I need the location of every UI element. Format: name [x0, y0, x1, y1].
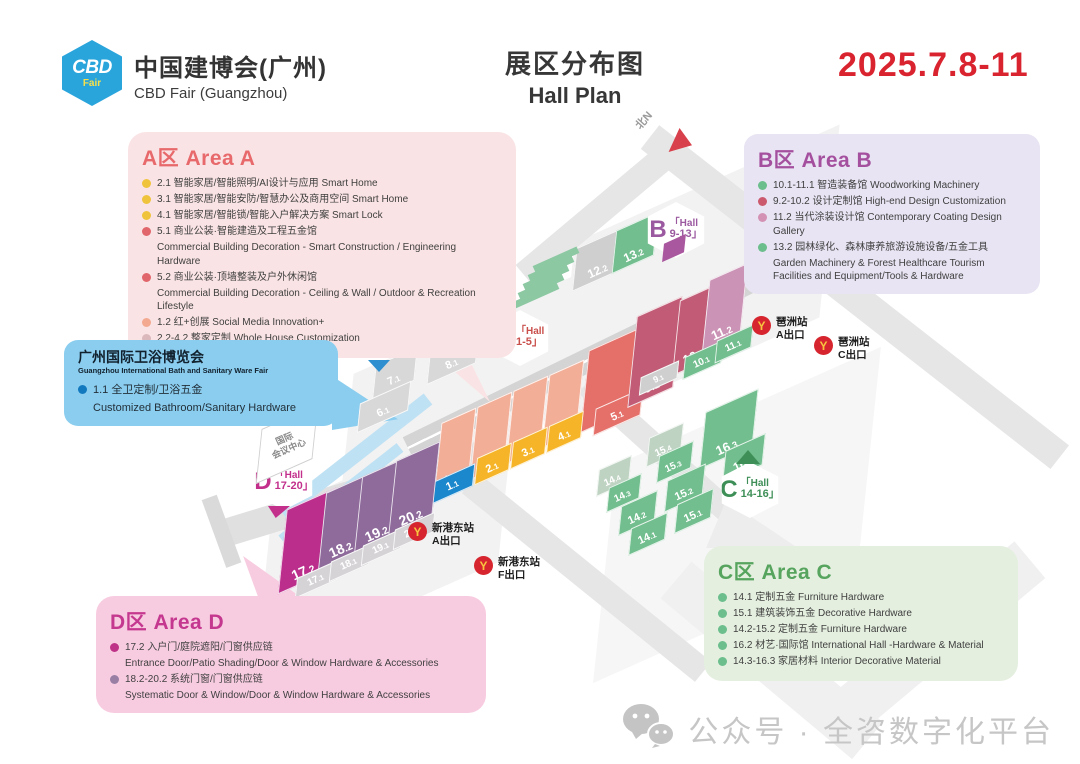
- legend-subtext: Commercial Building Decoration - Ceiling…: [157, 287, 502, 314]
- hall-number: 10.1: [692, 354, 713, 372]
- hall-number: 5.1: [609, 409, 626, 426]
- legend-dot: [142, 273, 151, 282]
- wechat-icon: [622, 703, 676, 754]
- legend-text: 14.2-15.2 定制五金 Furniture Hardware: [733, 623, 907, 637]
- legend-item: 17.2 入户门/庭院遮阳/门窗供应链: [110, 641, 472, 655]
- legend-text: 2.1 智能家居/智能照明/AI设计与应用 Smart Home: [157, 177, 378, 191]
- hall-number: 1.1: [444, 478, 461, 495]
- legend-item: 9.2-10.2 设计定制馆 High-end Design Customiza…: [758, 195, 1026, 209]
- legend-text: 14.3-16.3 家居材料 Interior Decorative Mater…: [733, 655, 941, 669]
- legend-dot: [718, 657, 727, 666]
- legend-subtext: Commercial Building Decoration - Smart C…: [157, 241, 502, 268]
- legend-dot: [142, 227, 151, 236]
- brand-title-cn: 中国建博会(广州): [134, 48, 327, 83]
- legend-text: 10.1-11.1 智造装备馆 Woodworking Machinery: [773, 179, 979, 193]
- legend-subtext: Systematic Door & Window/Door & Window H…: [125, 689, 472, 703]
- page-title: 展区分布图 Hall Plan: [425, 44, 725, 109]
- legend-dot: [718, 641, 727, 650]
- legend-item: 15.1 建筑装饰五金 Decorative Hardware: [718, 607, 1004, 621]
- legend-text: 14.1 定制五金 Furniture Hardware: [733, 591, 884, 605]
- station-label: 新港东站F出口: [498, 556, 540, 582]
- station-label: 新港东站A出口: [432, 522, 474, 548]
- metro-station-琶洲站-C出口: Y琶洲站C出口: [814, 336, 870, 362]
- legend-text: 5.1 商业公装·智能建造及工程五金馆: [157, 225, 317, 239]
- legend-item: 10.1-11.1 智造装备馆 Woodworking Machinery: [758, 179, 1026, 193]
- bath-fair-legend: 广州国际卫浴博览会 Guangzhou International Bath a…: [64, 340, 338, 426]
- legend-dot: [758, 181, 767, 190]
- metro-station-琶洲站-A出口: Y琶洲站A出口: [752, 316, 808, 342]
- area-a-legend: A区 Area A 2.1 智能家居/智能照明/AI设计与应用 Smart Ho…: [128, 132, 516, 358]
- legend-dot: [718, 625, 727, 634]
- area-d-legend: D区 Area D 17.2 入户门/庭院遮阳/门窗供应链 Entrance D…: [96, 596, 486, 713]
- legend-dot: [142, 195, 151, 204]
- page-title-en: Hall Plan: [425, 83, 725, 109]
- legend-dot: [758, 243, 767, 252]
- legend-item: 5.2 商业公装·顶墙整装及户外休闲馆: [142, 271, 502, 285]
- hall-number: 17.1: [306, 572, 327, 590]
- legend-dot: [718, 593, 727, 602]
- conference-center-label: 国际会议中心: [266, 426, 308, 461]
- metro-icon: Y: [752, 316, 771, 335]
- legend-dot: [110, 675, 119, 684]
- legend-subtext: Customized Bathroom/Sanitary Hardware: [93, 401, 324, 416]
- logo-abbr: CBD: [72, 57, 112, 79]
- event-dates: 2025.7.8-11: [838, 46, 1029, 85]
- hall-number: 13.2: [621, 245, 645, 266]
- legend-item: 14.3-16.3 家居材料 Interior Decorative Mater…: [718, 655, 1004, 669]
- hall-number: 8.1: [444, 357, 461, 374]
- area-c-title: C区 Area C: [718, 556, 1004, 586]
- legend-subtext: Entrance Door/Patio Shading/Door & Windo…: [125, 657, 472, 671]
- hall-number: 4.1: [556, 429, 573, 446]
- legend-item: 3.1 智能家居/智能安防/智慧办公及商用空间 Smart Home: [142, 193, 502, 207]
- legend-item: 13.2 园林绿化、森林康养旅游设施设备/五金工具: [758, 241, 1026, 255]
- legend-text: 15.1 建筑装饰五金 Decorative Hardware: [733, 607, 912, 621]
- hall-number: 15.1: [682, 508, 705, 528]
- hall-number: 19.1: [371, 540, 392, 558]
- page-title-cn: 展区分布图: [425, 44, 725, 81]
- legend-item: 11.2 当代涂装设计馆 Contemporary Coating Design…: [758, 211, 1026, 238]
- legend-subtext: Garden Machinery & Forest Healthcare Tou…: [773, 257, 1026, 284]
- legend-item: 14.1 定制五金 Furniture Hardware: [718, 591, 1004, 605]
- legend-text: 9.2-10.2 设计定制馆 High-end Design Customiza…: [773, 195, 1006, 209]
- brand-block: 中国建博会(广州) CBD Fair (Guangzhou): [134, 48, 327, 102]
- metro-icon: Y: [474, 556, 493, 575]
- hall-number: 2.1: [484, 461, 501, 478]
- legend-text: 17.2 入户门/庭院遮阳/门窗供应链: [125, 641, 273, 655]
- station-label: 琶洲站A出口: [776, 316, 808, 342]
- metro-station-新港东站-A出口: Y新港东站A出口: [408, 522, 474, 548]
- legend-item: 4.1 智能家居/智能锁/智能入户解决方案 Smart Lock: [142, 209, 502, 223]
- legend-text: 13.2 园林绿化、森林康养旅游设施设备/五金工具: [773, 241, 988, 255]
- legend-dot: [142, 318, 151, 327]
- hall-number: 18.1: [339, 556, 360, 574]
- legend-item: 18.2-20.2 系统门窗/门窗供应链: [110, 673, 472, 687]
- hex-letter: C: [720, 476, 737, 504]
- hall-number: 3.1: [520, 445, 537, 462]
- watermark: 公众号 · 全咨数字化平台: [622, 703, 1054, 754]
- legend-text: 1.1 全卫定制/卫浴五金: [93, 383, 202, 398]
- bath-fair-title: 广州国际卫浴博览会: [78, 350, 324, 365]
- hall-number: 12.2: [585, 261, 609, 282]
- legend-dot: [142, 211, 151, 220]
- metro-station-新港东站-F出口: Y新港东站F出口: [474, 556, 540, 582]
- legend-dot: [758, 213, 767, 222]
- hall-number: 9.1: [652, 372, 666, 387]
- legend-text: 18.2-20.2 系统门窗/门窗供应链: [125, 673, 263, 687]
- legend-item: 1.1 全卫定制/卫浴五金: [78, 383, 324, 398]
- legend-dot: [758, 197, 767, 206]
- legend-item: 1.2 红+创展 Social Media Innovation+: [142, 316, 502, 330]
- hex-letter: B: [649, 216, 666, 244]
- legend-text: 5.2 商业公装·顶墙整装及户外休闲馆: [157, 271, 317, 285]
- hall-number: 6.1: [375, 405, 392, 422]
- legend-item: 5.1 商业公装·智能建造及工程五金馆: [142, 225, 502, 239]
- area-d-title: D区 Area D: [110, 606, 472, 636]
- metro-icon: Y: [814, 336, 833, 355]
- legend-text: 16.2 材艺·国际馆 International Hall -Hardware…: [733, 639, 984, 653]
- legend-dot: [78, 385, 87, 394]
- brand-title-en: CBD Fair (Guangzhou): [134, 85, 327, 102]
- watermark-text: 公众号 · 全咨数字化平台: [688, 707, 1054, 751]
- area-a-title: A区 Area A: [142, 142, 502, 172]
- bath-fair-subtitle: Guangzhou International Bath and Sanitar…: [78, 366, 324, 375]
- legend-item: 2.1 智能家居/智能照明/AI设计与应用 Smart Home: [142, 177, 502, 191]
- area-c-legend: C区 Area C 14.1 定制五金 Furniture Hardware 1…: [704, 546, 1018, 681]
- legend-text: 1.2 红+创展 Social Media Innovation+: [157, 316, 324, 330]
- legend-dot: [142, 179, 151, 188]
- legend-text: 11.2 当代涂装设计馆 Contemporary Coating Design…: [773, 211, 1026, 238]
- metro-icon: Y: [408, 522, 427, 541]
- legend-item: 16.2 材艺·国际馆 International Hall -Hardware…: [718, 639, 1004, 653]
- logo-fair: Fair: [83, 78, 101, 89]
- area-b-title: B区 Area B: [758, 144, 1026, 174]
- station-label: 琶洲站C出口: [838, 336, 870, 362]
- legend-dot: [110, 643, 119, 652]
- hall-number: 14.1: [636, 529, 659, 549]
- legend-text: 3.1 智能家居/智能安防/智慧办公及商用空间 Smart Home: [157, 193, 408, 207]
- legend-dot: [718, 609, 727, 618]
- legend-text: 4.1 智能家居/智能锁/智能入户解决方案 Smart Lock: [157, 209, 383, 223]
- area-b-legend: B区 Area B 10.1-11.1 智造装备馆 Woodworking Ma…: [744, 134, 1040, 294]
- hall-number: 11.1: [724, 339, 744, 357]
- legend-item: 14.2-15.2 定制五金 Furniture Hardware: [718, 623, 1004, 637]
